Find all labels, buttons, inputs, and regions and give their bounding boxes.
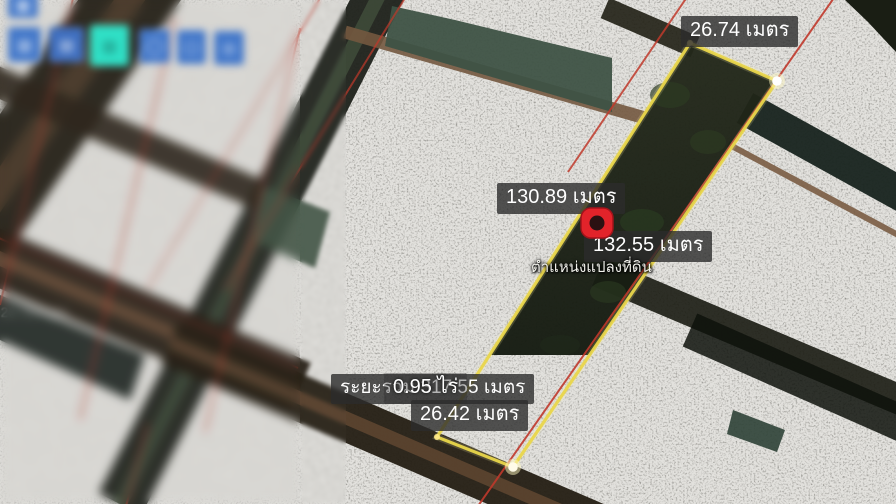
app-window: ©2023 Google 26.74 เมตร 130.89 เมตร 132.…	[0, 0, 896, 504]
measurement-label-bottom-edge: 26.42 เมตร	[411, 400, 528, 431]
map-attribution: ©2023 Google	[0, 305, 68, 320]
vertex-handle[interactable]	[769, 73, 785, 89]
plot-position-label: ตำแหน่งแปลงที่ดิน	[531, 255, 652, 279]
plot-marker-pin[interactable]	[578, 206, 616, 240]
layers-tool-icon[interactable]: ▧	[8, 27, 41, 62]
parcel-tool-icon[interactable]: ▤	[49, 27, 84, 62]
vertex-handle[interactable]	[434, 434, 440, 440]
measure-tool-icon[interactable]: ▨	[90, 25, 129, 66]
square-tool-icon[interactable]: ▢	[177, 30, 206, 64]
vertex-handle[interactable]	[505, 459, 521, 475]
measurement-label-area: 0.95 ไร่	[384, 373, 467, 404]
marker-hole	[590, 216, 605, 231]
measurement-label-top-edge: 26.74 เมตร	[681, 16, 798, 47]
map-toolbar: ▦ ▧ ▤ ▨ ◯ ▢ ◎	[0, 0, 260, 78]
circle-tool-icon[interactable]: ◯	[139, 29, 170, 63]
grid-tool-icon[interactable]: ▦	[8, 0, 38, 18]
target-tool-icon[interactable]: ◎	[214, 31, 244, 65]
